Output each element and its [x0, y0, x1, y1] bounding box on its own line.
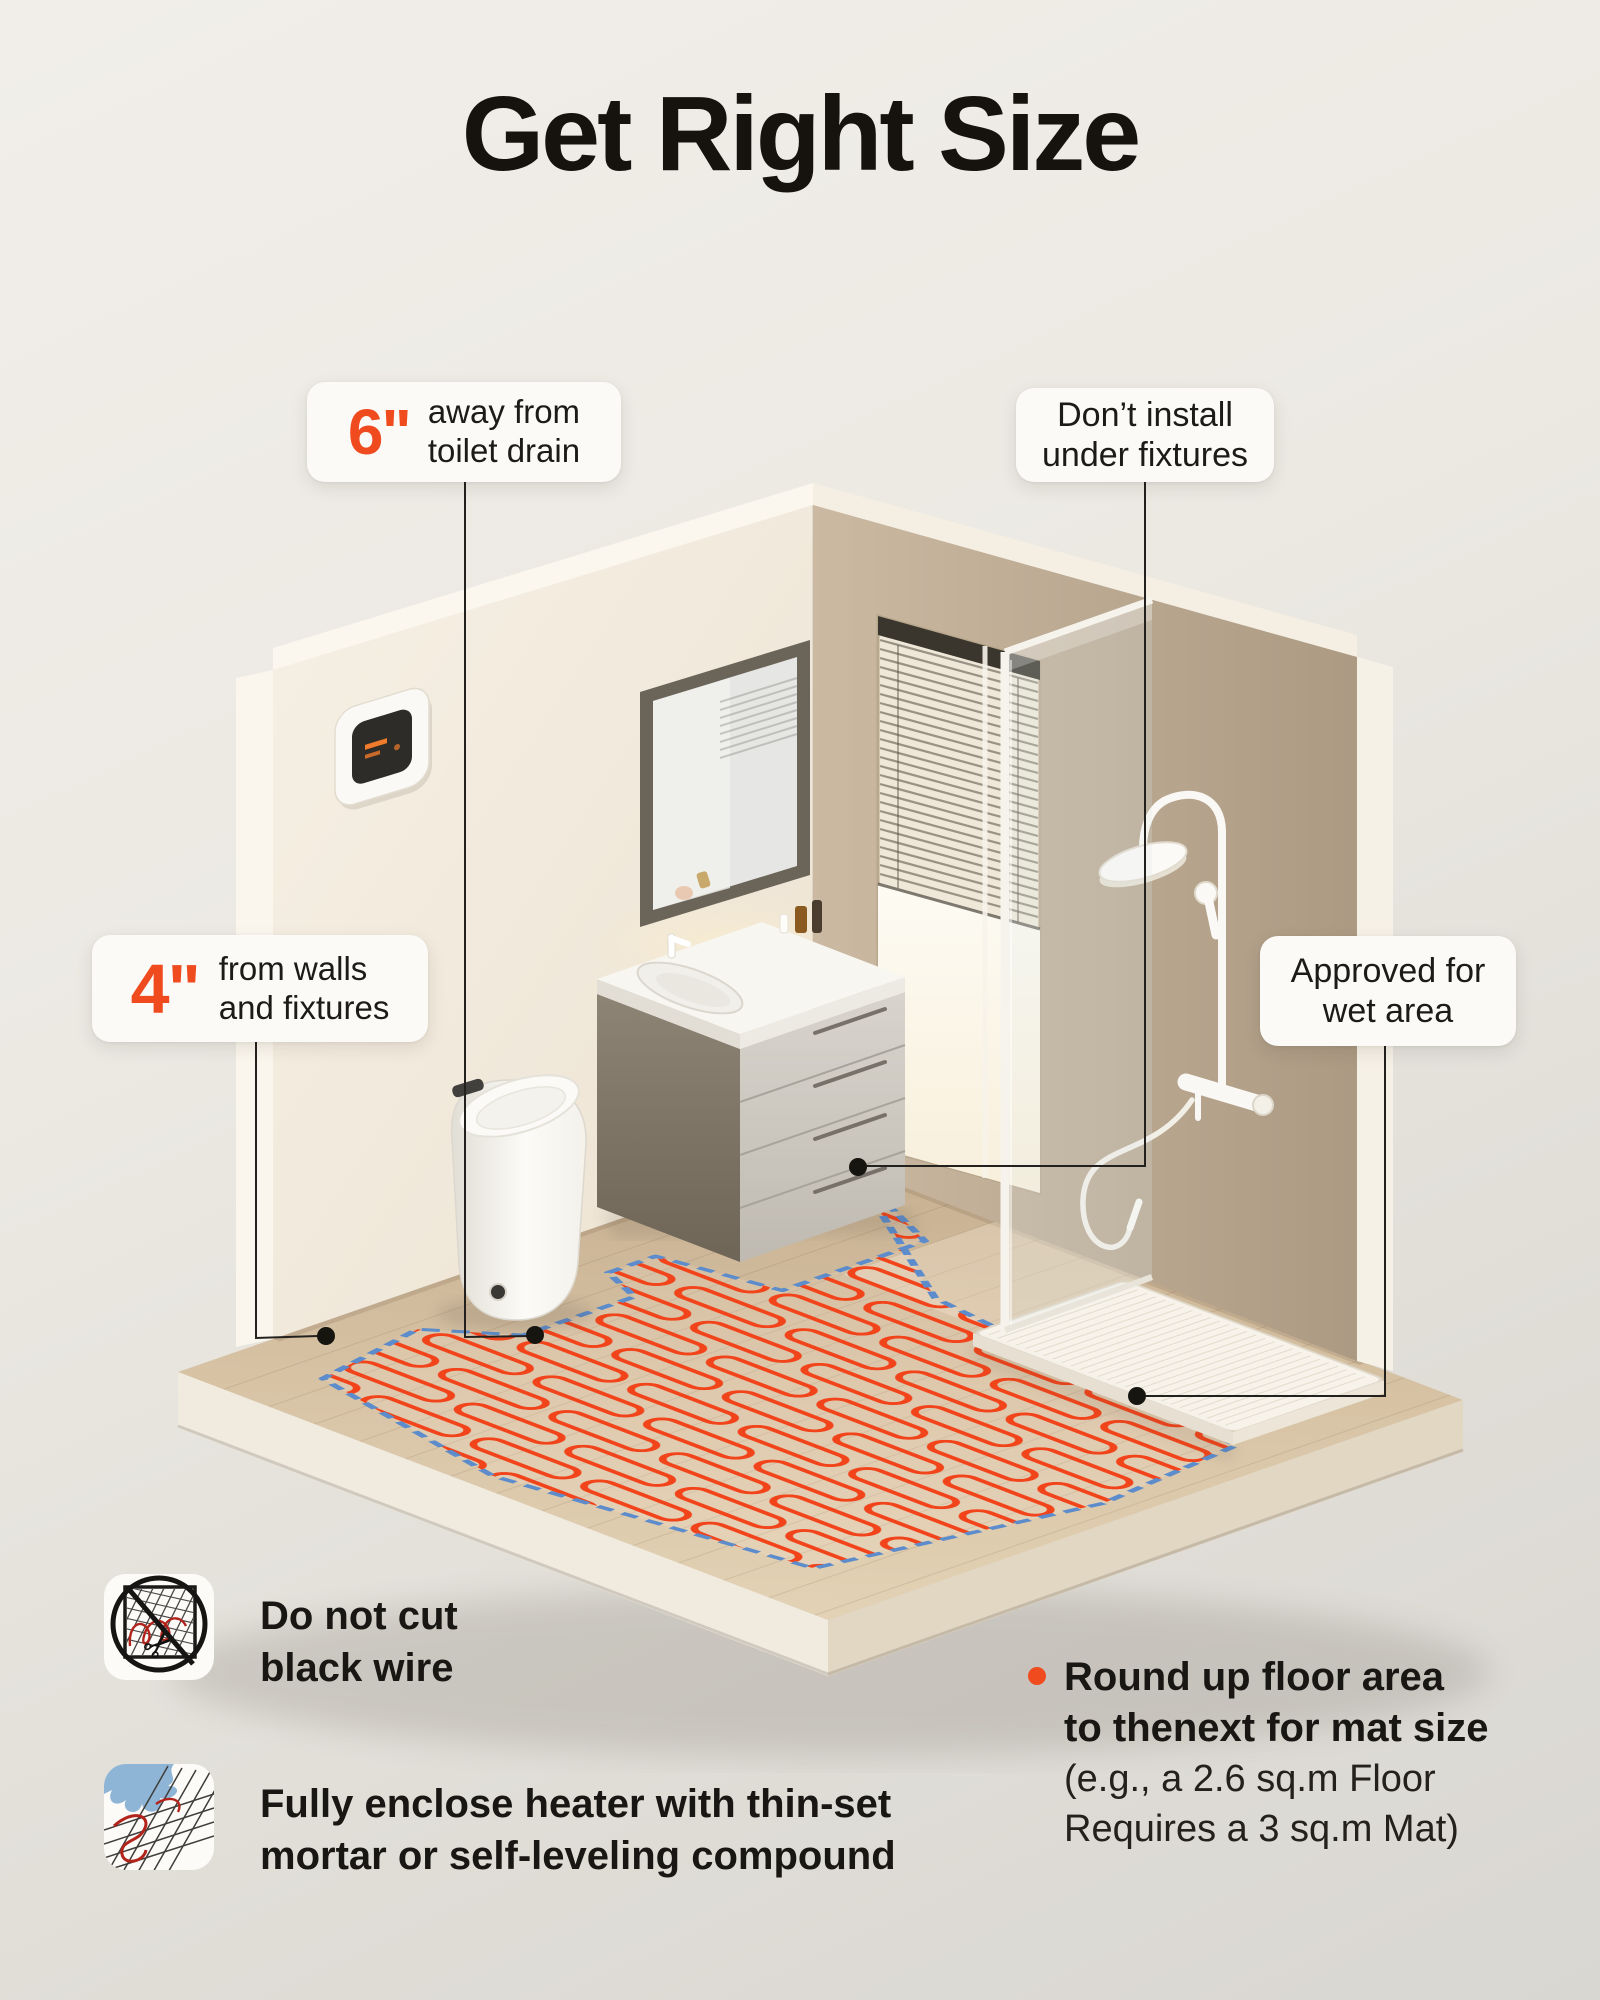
- counter-tube: [780, 914, 788, 933]
- callout-line: and fixtures: [219, 989, 390, 1026]
- callout-no-fixtures-text: Don’t install under fixtures: [1042, 395, 1248, 475]
- page-title: Get Right Size: [0, 74, 1600, 195]
- tip-line-normal: (e.g., a 2.6 sq.m Floor: [1064, 1754, 1489, 1804]
- note-line: mortar or self-leveling compound: [260, 1830, 896, 1882]
- callout-line: from walls: [219, 950, 368, 987]
- valve-knob: [1253, 1095, 1273, 1115]
- note-enclose-heater: Fully enclose heater with thin-set morta…: [260, 1778, 896, 1882]
- counter-bottle-dark: [812, 900, 822, 933]
- callout-walls-fixtures: 4" from walls and fixtures: [92, 935, 428, 1042]
- infographic-page: Get Right Size 6" away from toilet drain…: [0, 0, 1600, 2000]
- callout-line: wet area: [1323, 992, 1453, 1030]
- dot-no-fixtures: [849, 1158, 867, 1176]
- callout-wet-area: Approved for wet area: [1260, 936, 1516, 1046]
- tip-line-bold: Round up floor area: [1064, 1652, 1489, 1703]
- callout-walls-fixtures-text: from walls and fixtures: [219, 950, 390, 1028]
- callout-walls-fixtures-value: 4": [131, 954, 199, 1024]
- callout-line: under fixtures: [1042, 436, 1248, 474]
- dot-toilet-drain: [526, 1326, 544, 1344]
- callout-line: Approved for: [1291, 952, 1486, 990]
- counter-bottle-amber: [795, 906, 807, 933]
- callout-toilet-drain-text: away from toilet drain: [428, 393, 580, 471]
- dot-walls-fixtures: [317, 1327, 335, 1345]
- callout-line: away from: [428, 393, 580, 430]
- dot-wet-area: [1128, 1387, 1146, 1405]
- note-line: black wire: [260, 1642, 458, 1694]
- toilet-drain-button: [490, 1284, 506, 1300]
- callout-line: Don’t install: [1057, 396, 1233, 434]
- mirror-glass-highlight: [653, 678, 730, 910]
- note-line: Fully enclose heater with thin-set: [260, 1778, 896, 1830]
- note-do-not-cut: Do not cut black wire: [260, 1590, 458, 1694]
- callout-toilet-drain: 6" away from toilet drain: [307, 382, 621, 482]
- tip-text: Round up floor area to thenext for mat s…: [1064, 1652, 1489, 1854]
- callout-wet-area-text: Approved for wet area: [1291, 951, 1486, 1031]
- tip-line-bold: to thenext for mat size: [1064, 1703, 1489, 1754]
- glass-sheet: [1005, 600, 1152, 1334]
- mortar-over-mesh-icon: [104, 1764, 214, 1870]
- callout-no-fixtures: Don’t install under fixtures: [1016, 388, 1274, 482]
- tip-round-up: Round up floor area to thenext for mat s…: [1028, 1652, 1489, 1854]
- shelf-item: [675, 886, 693, 900]
- bullet-dot: [1028, 1667, 1046, 1685]
- note-line: Do not cut: [260, 1590, 458, 1642]
- no-cut-scissors-prohibition-icon: ✂: [104, 1574, 214, 1680]
- tip-line-normal: Requires a 3 sq.m Mat): [1064, 1804, 1489, 1854]
- callout-toilet-drain-value: 6": [348, 400, 410, 464]
- shower-glass-panel: [1005, 600, 1152, 1334]
- callout-line: toilet drain: [428, 432, 580, 469]
